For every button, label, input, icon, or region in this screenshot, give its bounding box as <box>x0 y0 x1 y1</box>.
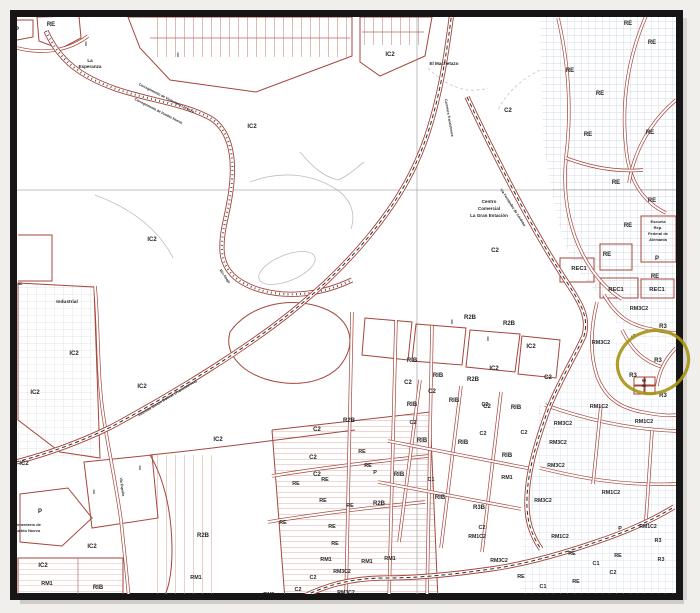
zone-label: RIB <box>435 495 446 501</box>
zone-label: P <box>373 470 377 476</box>
zone-label: IC2 <box>69 351 79 357</box>
zone-label: RE <box>358 449 366 455</box>
zone-label: Pueblo Nuevo <box>14 528 41 533</box>
zone-label: R2B <box>467 377 480 383</box>
zone-label: IC2 <box>19 461 29 467</box>
zone-label: C2 <box>479 525 486 531</box>
zone-label: RM1C2 <box>590 404 608 410</box>
zone-label: Comercial <box>478 206 500 211</box>
zone-label: RE <box>596 91 604 97</box>
zone-label: RM3C2 <box>554 421 572 427</box>
zone-label: R2B <box>343 418 356 424</box>
zone-label: IC2 <box>247 124 257 130</box>
zone-label: Centro <box>482 199 497 204</box>
zone-label: RM1C2 <box>639 524 657 530</box>
zone-label: RE <box>331 541 339 547</box>
zone-label: RE <box>566 68 574 74</box>
zone-label: R3 <box>654 358 662 364</box>
zone-label: RE <box>279 520 287 526</box>
zone-label: C2 <box>480 431 487 437</box>
zone-label: C1 <box>593 561 600 567</box>
zone-label: Cementerio de <box>13 522 42 527</box>
zone-label: RM1C2 <box>602 490 620 496</box>
zone-label: C2 <box>544 375 552 381</box>
zone-label: IC2 <box>30 390 40 396</box>
zone-label: RM1 <box>361 559 372 565</box>
zone-label: RM3C2 <box>534 498 552 504</box>
district-industrial-lots <box>18 283 94 458</box>
zone-label: RM3C2 <box>592 340 610 346</box>
zone-label: C2 <box>313 427 321 433</box>
zone-label: IC2 <box>489 366 499 372</box>
zone-label: RE <box>612 180 620 186</box>
zone-label: R3 <box>629 373 637 379</box>
zone-label: RM3C2 <box>549 440 567 446</box>
zone-label: RE <box>572 579 580 585</box>
zone-label: C2 <box>491 248 499 254</box>
zone-label: RM3C2 <box>333 569 351 575</box>
zone-label: C2 <box>310 575 317 581</box>
zone-label: RE <box>651 274 659 280</box>
zone-label: RM1C2 <box>468 534 486 540</box>
zone-label: REC1 <box>571 266 587 272</box>
zone-label: Industrial <box>56 299 78 305</box>
zone-label: C2 <box>313 472 321 478</box>
district-rm1-rows <box>18 560 123 595</box>
zone-label: R2B <box>503 321 516 327</box>
zone-label: P <box>38 509 42 515</box>
zone-label: Rep. <box>654 225 663 230</box>
zone-label: C2 <box>295 587 302 593</box>
zone-label: ac <box>18 281 23 286</box>
zone-label: RM1 <box>501 475 512 481</box>
zone-label: Federal de <box>648 231 669 236</box>
zone-label: IC2 <box>526 344 536 350</box>
zone-label: RM1C2 <box>551 534 569 540</box>
zone-label: C2 <box>404 380 412 386</box>
zone-label: RM3C2 <box>630 306 648 312</box>
zone-label: C2 <box>482 402 489 408</box>
zone-label: RE <box>614 553 622 559</box>
zone-label: La Gran Estación <box>470 213 508 218</box>
zone-label: IC2 <box>38 563 48 569</box>
district-i2-lots <box>362 17 424 45</box>
zone-label: IC2 <box>213 437 223 443</box>
zone-label: RE <box>642 384 646 388</box>
zone-label: RE <box>642 379 646 383</box>
zone-label: RE <box>364 463 372 469</box>
zone-label: Alemania <box>649 237 668 242</box>
zone-label: RM3C2 <box>547 463 565 469</box>
zone-label: RIB <box>93 585 104 591</box>
zone-label: RE <box>568 551 576 557</box>
zone-label: REC1 <box>649 287 665 293</box>
zone-label: IC2 <box>87 544 97 550</box>
zone-label: RM1 <box>190 575 201 581</box>
zone-label: RIB <box>407 358 418 364</box>
zone-label: RE <box>648 198 656 204</box>
zone-label: RIB <box>449 398 460 404</box>
zone-label: R3 <box>658 557 665 563</box>
zoning-map-page: PREILaEsperanzaIIC2IC2IC2El MachetazoC2C… <box>0 0 700 613</box>
zone-label: La <box>87 58 93 63</box>
zone-label: RM1 <box>320 557 331 563</box>
zone-label: RIB <box>458 440 469 446</box>
zone-label: R3B <box>473 505 486 511</box>
zone-label: RE <box>603 252 611 258</box>
zone-label: IC2 <box>385 52 395 58</box>
zoning-map: PREILaEsperanzaIIC2IC2IC2El MachetazoC2C… <box>0 0 700 613</box>
zone-label: RM1 <box>41 581 52 587</box>
zone-label: RIB <box>417 438 428 444</box>
zone-label: C2 <box>504 108 512 114</box>
zone-label: RIB <box>511 405 522 411</box>
zone-label: C2 <box>428 389 436 395</box>
zone-label: P <box>655 256 659 262</box>
zone-label: RE <box>624 21 632 27</box>
zone-label: RM1 <box>384 556 395 562</box>
zone-label: RE <box>292 481 300 487</box>
zone-label: REC1 <box>608 287 624 293</box>
zone-label: IC2 <box>137 384 147 390</box>
zone-label: RIB <box>433 373 444 379</box>
zone-label: RE <box>517 574 525 580</box>
zone-label: C2 <box>309 455 317 461</box>
zone-label: RE <box>321 477 329 483</box>
zone-label: R2B <box>464 315 477 321</box>
zone-label: RM1C2 <box>635 419 653 425</box>
zone-label: P <box>618 526 622 532</box>
zone-label: RIB <box>407 402 418 408</box>
zone-label: El Machetazo <box>429 61 458 66</box>
zone-label: C2 <box>410 420 417 426</box>
zone-label: R2B <box>373 501 386 507</box>
zone-label: RE <box>47 22 55 28</box>
zone-label: RIB <box>502 453 513 459</box>
district-i-lots <box>150 17 350 57</box>
zone-label: RE <box>648 40 656 46</box>
zone-label: RE <box>646 130 654 136</box>
zone-label: C1 <box>540 584 547 590</box>
zone-label: RE <box>328 524 336 530</box>
zone-label: R2B <box>197 533 210 539</box>
zone-label: RE <box>319 498 327 504</box>
zone-label: C2 <box>521 430 528 436</box>
zone-label: RM3C2 <box>490 558 508 564</box>
zone-label: R3 <box>659 393 667 399</box>
zone-label: C2 <box>610 570 617 576</box>
zone-label: RE <box>346 503 354 509</box>
zone-label: RE <box>584 132 592 138</box>
zone-label: IC2 <box>147 237 157 243</box>
zone-label: Escuela <box>650 219 666 224</box>
zone-label: R3 <box>655 538 662 544</box>
zone-label: RE <box>624 223 632 229</box>
zone-label: RIB <box>394 472 405 478</box>
zone-label: Esperanza <box>79 64 102 69</box>
zone-label: C1 <box>428 477 435 483</box>
